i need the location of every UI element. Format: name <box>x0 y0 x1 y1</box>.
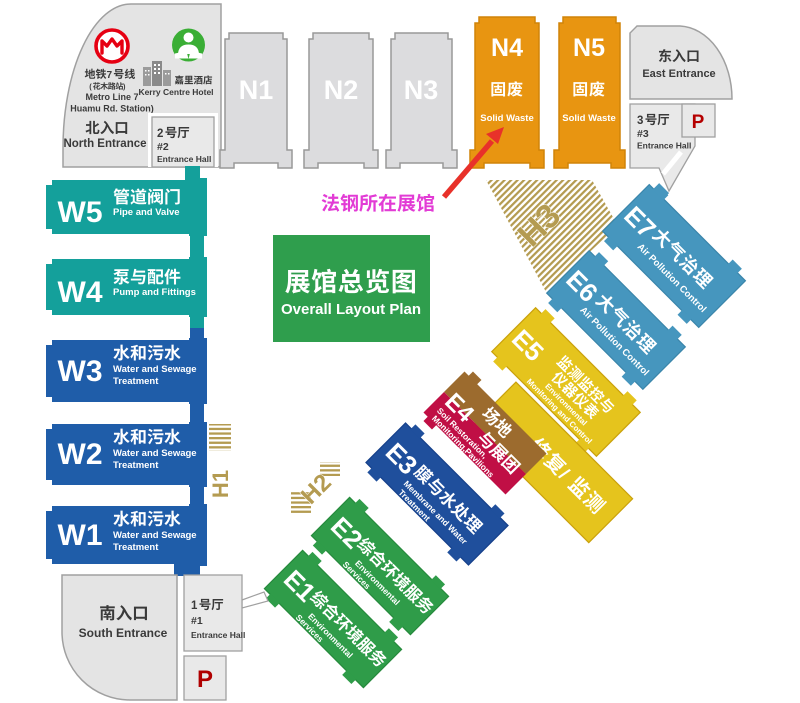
svg-text:W5: W5 <box>58 196 103 229</box>
svg-text:1: 1 <box>191 600 198 612</box>
svg-text:N5: N5 <box>573 34 605 62</box>
svg-text:Entrance Hall: Entrance Hall <box>637 141 691 151</box>
svg-text:North Entrance: North Entrance <box>63 138 146 150</box>
svg-text:Entrance Hall: Entrance Hall <box>157 154 211 164</box>
svg-text:Solid Waste: Solid Waste <box>562 113 616 124</box>
svg-text:Solid Waste: Solid Waste <box>480 113 534 124</box>
svg-text:P: P <box>197 666 213 693</box>
svg-text:Huamu Rd. Station): Huamu Rd. Station) <box>70 104 154 114</box>
svg-text:Water and Sewage: Water and Sewage <box>113 448 197 459</box>
svg-text:Entrance Hall: Entrance Hall <box>191 630 245 640</box>
svg-text:#3: #3 <box>637 128 649 140</box>
svg-text:3: 3 <box>637 115 643 127</box>
svg-text:N3: N3 <box>404 75 439 105</box>
svg-text:P: P <box>692 112 705 133</box>
svg-text:W3: W3 <box>58 355 103 388</box>
svg-text:2: 2 <box>157 128 163 140</box>
svg-text:South Entrance: South Entrance <box>79 626 168 640</box>
svg-text:Overall Layout Plan: Overall Layout Plan <box>281 301 421 318</box>
svg-text:N1: N1 <box>239 75 274 105</box>
svg-text:N2: N2 <box>324 75 359 105</box>
svg-text:N4: N4 <box>491 34 523 62</box>
svg-text:#1: #1 <box>191 615 203 627</box>
svg-text:Metro Line 7: Metro Line 7 <box>85 92 138 102</box>
svg-text:7: 7 <box>107 70 113 81</box>
svg-text:W4: W4 <box>58 276 103 309</box>
svg-text:Pump and Fittings: Pump and Fittings <box>113 287 196 298</box>
svg-text:Water and Sewage: Water and Sewage <box>113 530 197 541</box>
svg-text:Pipe and Valve: Pipe and Valve <box>113 207 180 218</box>
svg-text:Treatment: Treatment <box>113 542 159 553</box>
svg-text:Kerry Centre Hotel: Kerry Centre Hotel <box>138 87 213 97</box>
svg-text:#2: #2 <box>157 141 169 153</box>
svg-text:East Entrance: East Entrance <box>642 68 715 80</box>
svg-text:H1: H1 <box>208 470 233 498</box>
svg-text:Treatment: Treatment <box>113 376 159 387</box>
svg-text:W2: W2 <box>58 438 103 471</box>
svg-text:Treatment: Treatment <box>113 460 159 471</box>
svg-text:W1: W1 <box>58 519 103 552</box>
svg-text:Water and Sewage: Water and Sewage <box>113 364 197 375</box>
